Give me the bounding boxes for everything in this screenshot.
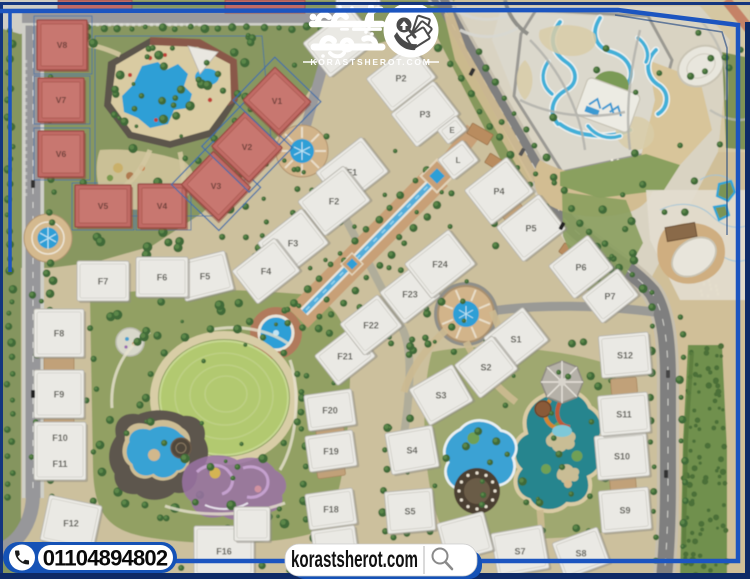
svg-text:F22: F22 (363, 320, 379, 330)
svg-text:KORASTSHEROT.COM: KORASTSHEROT.COM (310, 57, 431, 67)
svg-text:F11: F11 (52, 459, 67, 469)
svg-text:V4: V4 (157, 201, 168, 211)
svg-text:F10: F10 (52, 433, 68, 443)
svg-text:S9: S9 (619, 505, 630, 515)
svg-text:V7: V7 (56, 95, 67, 105)
svg-text:P2: P2 (395, 73, 406, 83)
svg-text:E: E (449, 126, 455, 135)
svg-text:V8: V8 (57, 40, 68, 50)
svg-text:P5: P5 (525, 223, 536, 233)
svg-text:F23: F23 (402, 289, 418, 299)
svg-text:V5: V5 (98, 201, 109, 211)
svg-text:F16: F16 (216, 546, 232, 556)
svg-text:F7: F7 (98, 276, 109, 286)
svg-text:V2: V2 (242, 142, 253, 152)
svg-text:S11: S11 (616, 409, 632, 419)
svg-text:F9: F9 (54, 389, 65, 399)
svg-text:F20: F20 (322, 405, 338, 415)
svg-text:S5: S5 (404, 506, 415, 516)
svg-text:F19: F19 (323, 446, 339, 456)
svg-text:P6: P6 (575, 262, 586, 272)
svg-text:F6: F6 (157, 272, 168, 282)
svg-text:S12: S12 (617, 350, 633, 360)
svg-text:S4: S4 (406, 445, 417, 455)
svg-text:F3: F3 (288, 238, 299, 248)
svg-text:F4: F4 (261, 266, 272, 276)
svg-text:F21: F21 (337, 351, 353, 361)
svg-text:V3: V3 (211, 181, 222, 191)
svg-text:P4: P4 (493, 186, 504, 196)
svg-text:S2: S2 (480, 362, 491, 372)
svg-text:V1: V1 (272, 96, 283, 106)
svg-text:S10: S10 (614, 451, 630, 461)
svg-text:F5: F5 (200, 271, 211, 281)
svg-text:F24: F24 (432, 259, 448, 269)
svg-text:P3: P3 (419, 109, 430, 119)
svg-text:korastsherot.com: korastsherot.com (291, 546, 418, 572)
svg-text:F8: F8 (54, 328, 65, 338)
svg-text:S8: S8 (575, 548, 586, 558)
svg-text:S7: S7 (514, 546, 525, 556)
svg-text:F2: F2 (329, 196, 340, 206)
svg-text:P7: P7 (604, 291, 615, 301)
svg-text:S3: S3 (435, 390, 446, 400)
svg-text:V6: V6 (56, 149, 67, 159)
svg-text:F18: F18 (323, 504, 339, 514)
svg-text:F12: F12 (63, 518, 79, 528)
svg-text:01104894802: 01104894802 (43, 546, 168, 571)
svg-text:L: L (456, 156, 461, 165)
svg-text:S1: S1 (510, 334, 521, 344)
